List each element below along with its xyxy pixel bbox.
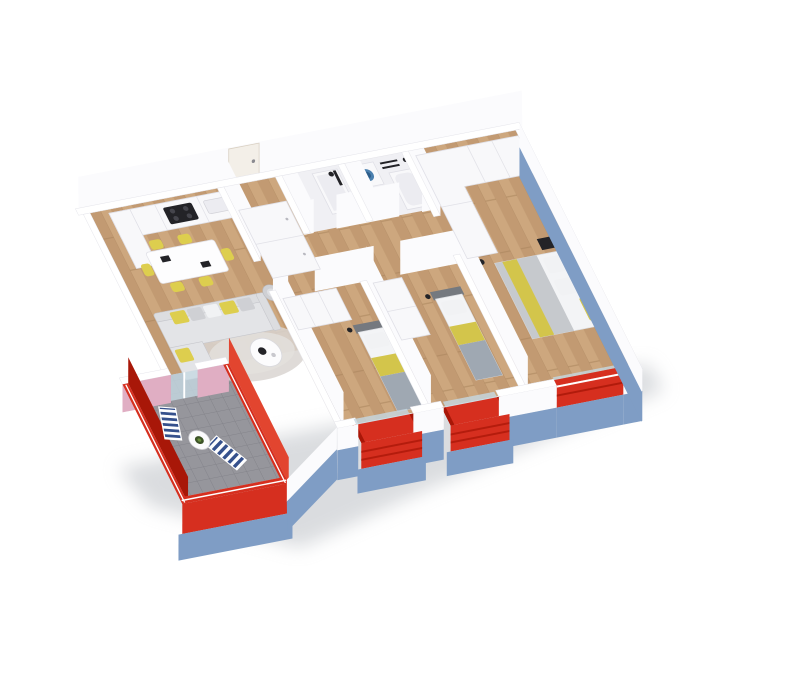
facade-white [337, 424, 358, 450]
floor-plan-page [0, 0, 808, 696]
door-mullion [183, 372, 185, 398]
floor-plan-render [0, 0, 808, 696]
plinth-blue [337, 446, 358, 480]
